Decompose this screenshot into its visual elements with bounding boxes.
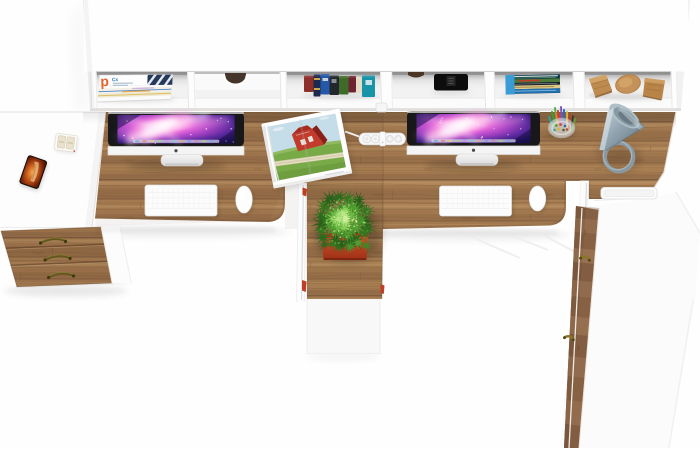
- svg-text:Cx: Cx: [112, 77, 119, 83]
- svg-text:p: p: [100, 73, 109, 89]
